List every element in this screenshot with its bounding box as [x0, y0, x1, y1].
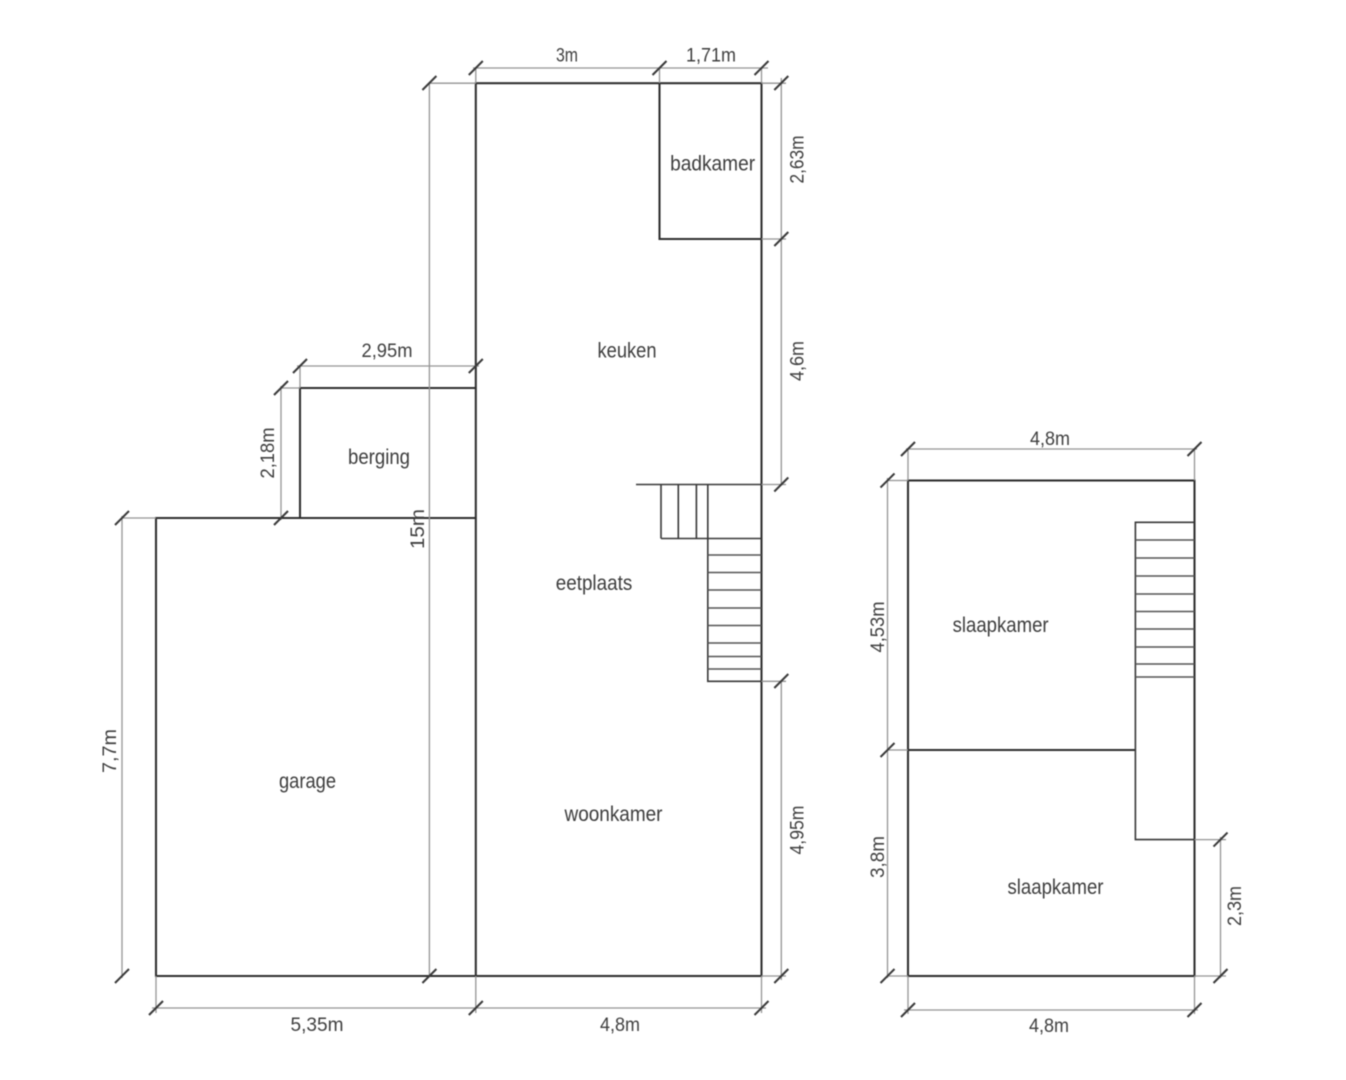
svg-text:garage: garage: [279, 770, 336, 793]
svg-text:4,6m: 4,6m: [788, 341, 809, 381]
svg-text:2,63m: 2,63m: [788, 136, 809, 184]
svg-text:3,8m: 3,8m: [868, 836, 889, 878]
svg-text:4,8m: 4,8m: [1029, 1016, 1069, 1037]
svg-text:berging: berging: [348, 446, 410, 469]
svg-text:4,95m: 4,95m: [788, 806, 809, 855]
svg-text:2,18m: 2,18m: [258, 428, 279, 479]
svg-text:woonkamer: woonkamer: [564, 803, 663, 826]
svg-text:badkamer: badkamer: [670, 153, 755, 176]
svg-text:slaapkamer: slaapkamer: [1008, 876, 1104, 899]
svg-text:slaapkamer: slaapkamer: [953, 614, 1049, 637]
svg-text:eetplaats: eetplaats: [556, 572, 633, 595]
svg-text:keuken: keuken: [598, 339, 657, 362]
svg-text:2,95m: 2,95m: [362, 341, 413, 362]
svg-text:4,8m: 4,8m: [1030, 429, 1070, 450]
svg-text:4,53m: 4,53m: [868, 602, 889, 653]
svg-text:15m: 15m: [408, 509, 429, 549]
svg-text:1,71m: 1,71m: [686, 46, 736, 67]
svg-text:3m: 3m: [556, 46, 578, 67]
svg-text:4,8m: 4,8m: [600, 1015, 640, 1036]
svg-text:2,3m: 2,3m: [1225, 886, 1246, 926]
svg-text:7,7m: 7,7m: [100, 729, 121, 773]
svg-text:5,35m: 5,35m: [291, 1015, 344, 1036]
